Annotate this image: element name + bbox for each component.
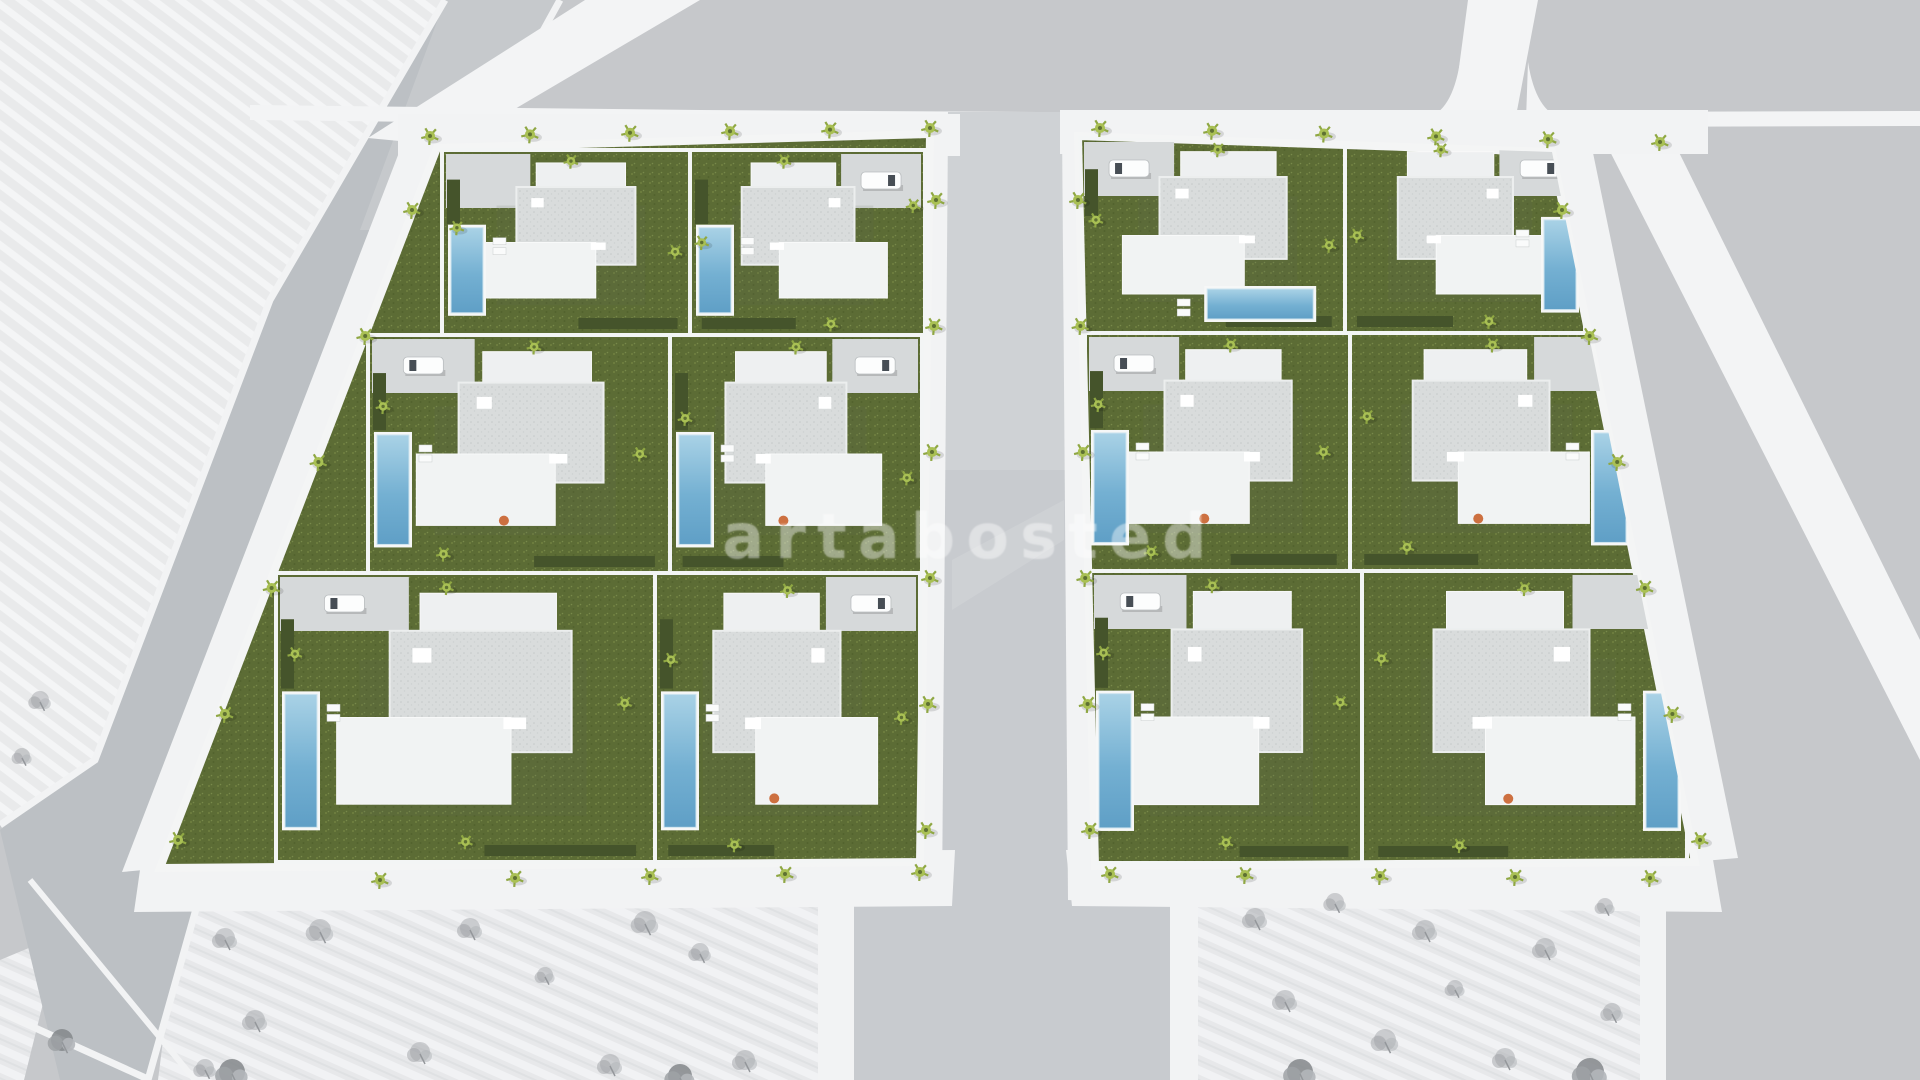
palm-core <box>638 452 641 455</box>
road-center-light-wash <box>945 112 1065 470</box>
palm-core <box>786 589 789 592</box>
palm-core <box>1513 875 1517 879</box>
swimming-pool <box>285 694 317 827</box>
roof-skylight <box>829 198 841 207</box>
palm-core <box>1491 343 1494 346</box>
palm-core <box>794 345 797 348</box>
palm-core <box>410 208 414 212</box>
palm-core <box>673 250 676 253</box>
palm-core <box>513 876 517 880</box>
garden-umbrella <box>499 516 509 526</box>
palm-core <box>176 838 180 842</box>
tree-crown <box>242 1016 256 1030</box>
palm-core <box>1339 701 1342 704</box>
house-wing-white <box>1436 236 1546 295</box>
sun-lounger <box>741 238 754 245</box>
roof-skylight <box>412 648 431 662</box>
sun-lounger <box>493 238 506 245</box>
palm-core <box>924 828 928 832</box>
tree-crown <box>732 1056 746 1070</box>
palm-core <box>1648 876 1652 880</box>
palm-core <box>928 126 932 130</box>
tree-crown <box>688 948 701 961</box>
palm-core <box>1083 576 1087 580</box>
garden-umbrella <box>769 793 779 803</box>
tree-crown <box>407 1048 421 1062</box>
palm-core <box>293 652 296 655</box>
palm-core <box>1229 343 1232 346</box>
tree-crown <box>457 924 471 938</box>
garden-umbrella <box>1199 514 1209 524</box>
palm-core <box>381 405 384 408</box>
palm-core <box>1643 586 1647 590</box>
palm-core <box>442 552 445 555</box>
sun-lounger <box>706 704 719 711</box>
palm-core <box>1086 702 1090 706</box>
palm-core <box>378 878 382 882</box>
sun-lounger <box>1141 704 1154 711</box>
car-windshield <box>1120 358 1127 369</box>
roof-skylight <box>745 718 761 730</box>
hedge-strip <box>1231 554 1337 565</box>
palm-core <box>1081 450 1085 454</box>
roof-skylight <box>1487 189 1499 199</box>
tree-crown <box>12 753 23 764</box>
palm-core <box>1615 460 1619 464</box>
car-windshield <box>1547 163 1554 174</box>
sun-lounger <box>327 704 340 711</box>
palm-core <box>783 872 787 876</box>
palm-core <box>1094 218 1097 221</box>
sun-lounger <box>1136 453 1149 460</box>
swimming-pool <box>377 435 409 544</box>
car-windshield <box>882 360 889 371</box>
palm-core <box>1487 320 1490 323</box>
palm-core <box>782 159 785 162</box>
hedge-strip <box>484 845 636 856</box>
palm-core <box>669 658 672 661</box>
roof-skylight <box>1554 647 1570 662</box>
tree-crown <box>1371 1036 1386 1051</box>
palm-core <box>455 226 458 229</box>
palm-core <box>528 132 532 136</box>
palm-core <box>918 870 922 874</box>
roof-skylight <box>591 243 606 250</box>
palm-core <box>1097 403 1100 406</box>
palm-core <box>1523 587 1526 590</box>
palm-core <box>1224 841 1227 844</box>
palm-core <box>1434 134 1438 138</box>
tree-crown <box>212 934 226 948</box>
palm-core <box>1211 584 1214 587</box>
sun-lounger <box>419 455 432 462</box>
sun-lounger <box>1516 230 1529 237</box>
hedge-strip <box>695 180 708 224</box>
house-wing-white <box>1458 452 1589 523</box>
tree-crown <box>1492 1054 1506 1068</box>
palm-core <box>1588 334 1592 338</box>
roof-skylight <box>770 243 784 250</box>
swimming-pool <box>1099 694 1131 828</box>
tree-crown <box>1532 944 1546 958</box>
sun-lounger <box>741 248 754 255</box>
palm-core <box>926 702 930 706</box>
swimming-pool <box>679 435 711 544</box>
palm-core <box>1439 148 1442 151</box>
tree-crown <box>597 1060 611 1074</box>
garden-umbrella <box>778 516 788 526</box>
palm-core <box>733 843 736 846</box>
roof-skylight <box>1239 236 1255 244</box>
car-windshield <box>409 360 416 371</box>
palm-core <box>532 345 535 348</box>
house-wing-white <box>779 243 887 299</box>
palm-core <box>316 460 320 464</box>
roof-skylight <box>531 198 543 207</box>
palm-core <box>464 840 467 843</box>
palm-core <box>1243 873 1247 877</box>
sun-lounger <box>1141 714 1154 721</box>
tree-crown <box>28 696 41 709</box>
hedge-strip <box>1364 554 1478 565</box>
car-windshield <box>1126 596 1133 607</box>
hedge-strip <box>702 318 796 329</box>
palm-core <box>934 198 938 202</box>
hedge-strip <box>1378 846 1508 857</box>
car-windshield <box>330 598 337 609</box>
palm-core <box>700 241 703 244</box>
roof-skylight <box>477 397 492 409</box>
garden-umbrella <box>1473 514 1483 524</box>
roof-skylight <box>1518 395 1532 407</box>
house-wing-white <box>1486 717 1636 805</box>
palm-core <box>1150 550 1153 553</box>
sun-lounger <box>1618 704 1631 711</box>
roof-skylight <box>503 718 526 730</box>
tree-crown <box>48 1036 63 1051</box>
sun-lounger <box>1136 443 1149 450</box>
roof-skylight <box>1473 717 1493 729</box>
hedge-strip <box>668 845 774 856</box>
roof-skylight <box>811 648 824 662</box>
garden-umbrella <box>1503 794 1513 804</box>
palm-core <box>905 476 908 479</box>
tree-crown <box>1600 1008 1613 1021</box>
sidewalk-south-road-east <box>1170 895 1198 1080</box>
house-wing-white <box>1122 236 1244 295</box>
vacant-plot-bottom-left <box>158 906 830 1080</box>
tree-crown <box>535 972 546 983</box>
sun-lounger <box>1566 443 1579 450</box>
sun-lounger <box>721 455 734 462</box>
palm-core <box>1322 450 1325 453</box>
palm-core <box>1670 712 1674 716</box>
swimming-pool <box>664 694 696 827</box>
palm-core <box>912 204 915 207</box>
palm-core <box>569 159 572 162</box>
palm-core <box>1546 137 1550 141</box>
house-wing-white <box>766 454 882 525</box>
tree-crown <box>1323 898 1336 911</box>
house-wing-white <box>337 718 511 805</box>
palm-core <box>1216 148 1219 151</box>
palm-core <box>1088 828 1092 832</box>
roof-skylight <box>1447 452 1464 462</box>
palm-core <box>648 874 652 878</box>
palm-core <box>900 716 903 719</box>
sun-lounger <box>327 714 340 721</box>
palm-core <box>1365 415 1368 418</box>
car-windshield <box>878 598 885 609</box>
roof-skylight <box>1188 647 1202 662</box>
palm-core <box>270 586 274 590</box>
swimming-pool <box>451 228 483 313</box>
sun-lounger <box>706 714 719 721</box>
roof-skylight <box>756 454 771 464</box>
hedge-strip <box>447 180 460 224</box>
palm-core <box>1076 198 1080 202</box>
palm-core <box>1102 651 1105 654</box>
tree-crown <box>631 918 646 933</box>
palm-core <box>623 701 626 704</box>
house-wing-white <box>1134 717 1259 805</box>
palm-core <box>1560 208 1564 212</box>
hedge-strip <box>1240 846 1349 857</box>
hedge-strip <box>1085 169 1098 216</box>
tree-crown <box>1272 996 1286 1010</box>
house-wing-white <box>416 454 555 525</box>
roof-skylight <box>1427 236 1441 244</box>
palm-core <box>445 586 448 589</box>
sidewalk-south-road-west <box>818 895 854 1080</box>
palm-core <box>1322 132 1326 136</box>
roof-skylight <box>1253 717 1269 729</box>
sun-lounger <box>493 248 506 255</box>
hedge-strip <box>1357 316 1453 327</box>
palm-core <box>1405 545 1408 548</box>
palm-core <box>1658 140 1662 144</box>
hedge-strip <box>534 556 655 567</box>
palm-core <box>1210 129 1214 133</box>
palm-core <box>728 129 732 133</box>
roof-skylight <box>819 397 832 409</box>
car-windshield <box>888 175 895 186</box>
tree-crown <box>1595 903 1606 914</box>
roof-skylight <box>1244 452 1260 462</box>
house-wing-white <box>756 718 878 805</box>
palm-core <box>363 334 367 338</box>
palm-core <box>683 417 686 420</box>
palm-core <box>930 450 934 454</box>
tree-crown <box>1412 926 1426 940</box>
palm-core <box>1355 234 1358 237</box>
sun-lounger <box>1516 240 1529 247</box>
sun-lounger <box>419 445 432 452</box>
sun-lounger <box>721 445 734 452</box>
tree-crown <box>1242 914 1256 928</box>
palm-core <box>1108 872 1112 876</box>
tree-crown <box>306 926 321 941</box>
palm-core <box>1458 844 1461 847</box>
palm-core <box>1378 874 1382 878</box>
sidewalk-right-plot-east <box>1640 906 1666 1080</box>
roof-skylight <box>1180 395 1193 407</box>
tree-crown <box>193 1064 206 1077</box>
car-windshield <box>1115 163 1122 174</box>
aerial-render-canvas <box>0 0 1920 1080</box>
palm-core <box>223 712 227 716</box>
palm-core <box>829 322 832 325</box>
palm-core <box>1698 838 1702 842</box>
palm-core <box>428 134 432 138</box>
palm-core <box>1380 657 1383 660</box>
swimming-pool <box>1207 289 1313 319</box>
tree-crown <box>1445 985 1456 996</box>
house-wing-white <box>1127 452 1249 523</box>
sun-lounger <box>1566 453 1579 460</box>
swimming-pool <box>1094 433 1126 542</box>
sun-lounger <box>1177 299 1190 306</box>
roof-skylight <box>1175 189 1188 199</box>
palm-core <box>628 131 632 135</box>
roof-skylight <box>549 454 567 464</box>
palm-core <box>828 128 832 132</box>
palm-core <box>1078 324 1082 328</box>
sun-lounger <box>1177 309 1190 316</box>
palm-core <box>932 324 936 328</box>
palm-core <box>1327 244 1330 247</box>
hedge-strip <box>683 556 784 567</box>
sun-lounger <box>1618 714 1631 721</box>
aerial-development-render: artabosted <box>0 0 1920 1080</box>
hedge-strip <box>578 318 677 329</box>
palm-core <box>928 576 932 580</box>
palm-core <box>1098 126 1102 130</box>
